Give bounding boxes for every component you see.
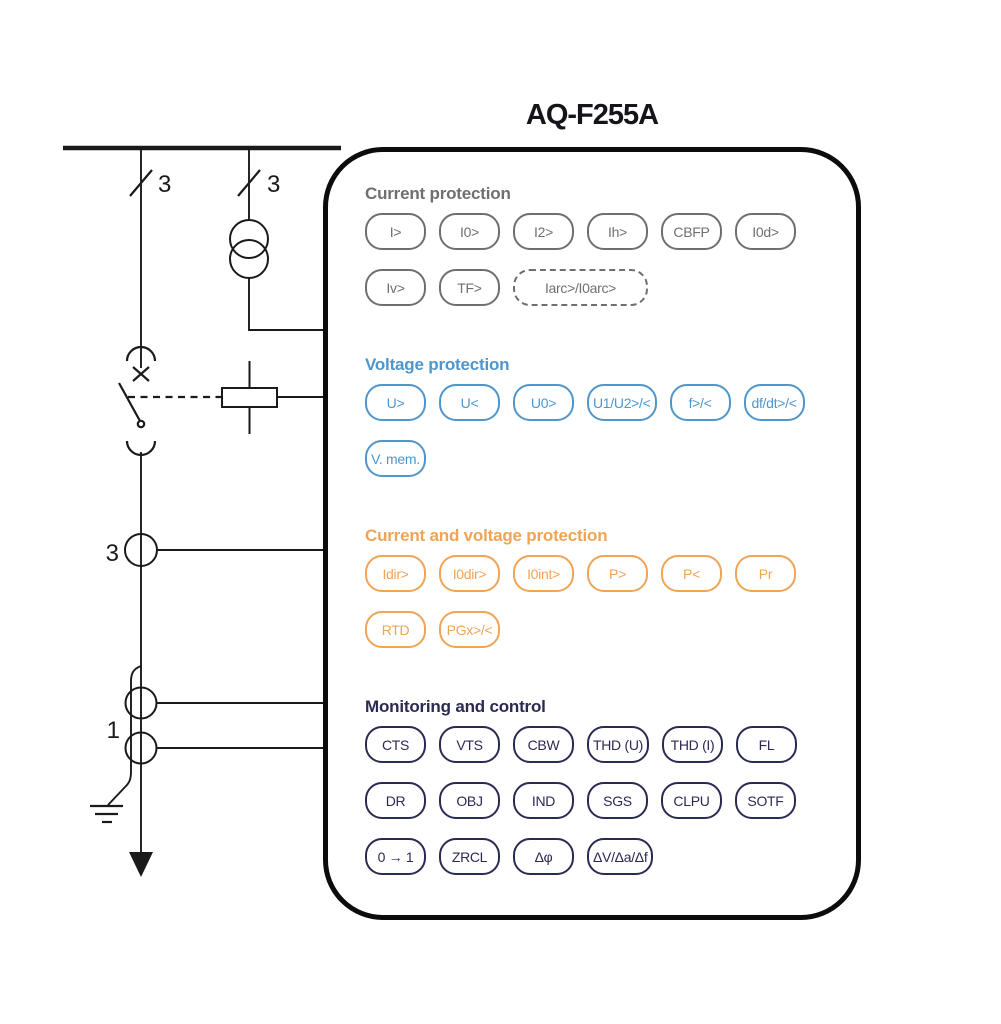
relay-model-title: AQ-F255A xyxy=(323,99,861,132)
function-badge: Idir> xyxy=(365,555,426,592)
voltage-transformer-icon xyxy=(230,220,268,278)
ct-count-label: 3 xyxy=(106,540,119,567)
section-title: Current and voltage protection xyxy=(365,526,835,546)
function-badge: P< xyxy=(661,555,722,592)
page: 3 3 3 1 AQ-F255A Current protection I>I0… xyxy=(0,0,1001,1024)
badge-row: V. mem. xyxy=(365,440,835,477)
function-badge: TF> xyxy=(439,269,500,306)
function-badge: U0> xyxy=(513,384,574,421)
section-title: Voltage protection xyxy=(365,355,835,375)
badge-rows: I>I0>I2>Ih>CBFPI0d>Iv>TF>Iarc>/I0arc> xyxy=(365,213,835,306)
function-badge: Δφ xyxy=(513,838,574,875)
function-badge: RTD xyxy=(365,611,426,648)
function-badge: I2> xyxy=(513,213,574,250)
section-current-protection: Current protection I>I0>I2>Ih>CBFPI0d>Iv… xyxy=(365,184,835,325)
badge-rows: Idir>I0dir>I0int>P>P<PrRTDPGx>/< xyxy=(365,555,835,648)
phase-count-label: 3 xyxy=(267,171,280,198)
section-title: Current protection xyxy=(365,184,835,204)
function-badge: f>/< xyxy=(670,384,731,421)
section-title: Monitoring and control xyxy=(365,697,835,717)
badge-row: Idir>I0dir>I0int>P>P<Pr xyxy=(365,555,835,592)
function-badge: V. mem. xyxy=(365,440,426,477)
function-badge: ZRCL xyxy=(439,838,500,875)
function-badge: Ih> xyxy=(587,213,648,250)
function-badge: I0d> xyxy=(735,213,796,250)
function-badge: Pr xyxy=(735,555,796,592)
function-badge: P> xyxy=(587,555,648,592)
function-badge: OBJ xyxy=(439,782,500,819)
function-badge: Iv> xyxy=(365,269,426,306)
function-badge: SGS xyxy=(587,782,648,819)
badge-rows: U>U<U0>U1/U2>/<f>/<df/dt>/<V. mem. xyxy=(365,384,835,477)
feeder-arrow-icon xyxy=(129,852,153,877)
section-voltage-protection: Voltage protection U>U<U0>U1/U2>/<f>/<df… xyxy=(365,355,835,496)
function-badge: Iarc>/I0arc> xyxy=(513,269,648,306)
section-monitoring-and-control: Monitoring and control CTSVTSCBWTHD (U)T… xyxy=(365,697,835,894)
function-badge: I> xyxy=(365,213,426,250)
function-badge: CBFP xyxy=(661,213,722,250)
function-badge: U1/U2>/< xyxy=(587,384,657,421)
ground-icon xyxy=(90,806,123,822)
function-badge: ΔV/Δa/Δf xyxy=(587,838,653,875)
function-badge: IND xyxy=(513,782,574,819)
function-badge: df/dt>/< xyxy=(744,384,805,421)
function-badge: U< xyxy=(439,384,500,421)
section-current-and-voltage-protection: Current and voltage protection Idir>I0di… xyxy=(365,526,835,667)
badge-row: CTSVTSCBWTHD (U)THD (I)FL xyxy=(365,726,835,763)
function-badge: SOTF xyxy=(735,782,796,819)
badge-row: 0 → 1ZRCLΔφΔV/Δa/Δf xyxy=(365,838,835,875)
function-badge: CBW xyxy=(513,726,574,763)
function-badge: THD (I) xyxy=(662,726,723,763)
function-badge: CTS xyxy=(365,726,426,763)
function-badge: I0> xyxy=(439,213,500,250)
phase-count-label: 3 xyxy=(158,171,171,198)
function-badge: I0dir> xyxy=(439,555,500,592)
badge-row: I>I0>I2>Ih>CBFPI0d> xyxy=(365,213,835,250)
function-badge: THD (U) xyxy=(587,726,649,763)
circuit-breaker-icon xyxy=(119,347,155,455)
badge-row: Iv>TF>Iarc>/I0arc> xyxy=(365,269,835,306)
badge-row: RTDPGx>/< xyxy=(365,611,835,648)
badge-row: U>U<U0>U1/U2>/<f>/<df/dt>/< xyxy=(365,384,835,421)
function-badge: FL xyxy=(736,726,797,763)
ring-ct-count-label: 1 xyxy=(107,717,120,744)
function-badge: I0int> xyxy=(513,555,574,592)
badge-row: DROBJINDSGSCLPUSOTF xyxy=(365,782,835,819)
badge-rows: CTSVTSCBWTHD (U)THD (I)FLDROBJINDSGSCLPU… xyxy=(365,726,835,875)
trip-coil-icon xyxy=(222,361,277,434)
function-badge: DR xyxy=(365,782,426,819)
function-badge: CLPU xyxy=(661,782,722,819)
function-badge: U> xyxy=(365,384,426,421)
function-badge: 0 → 1 xyxy=(365,838,426,875)
function-badge: PGx>/< xyxy=(439,611,500,648)
vt-connector-line xyxy=(249,278,328,330)
function-badge: VTS xyxy=(439,726,500,763)
